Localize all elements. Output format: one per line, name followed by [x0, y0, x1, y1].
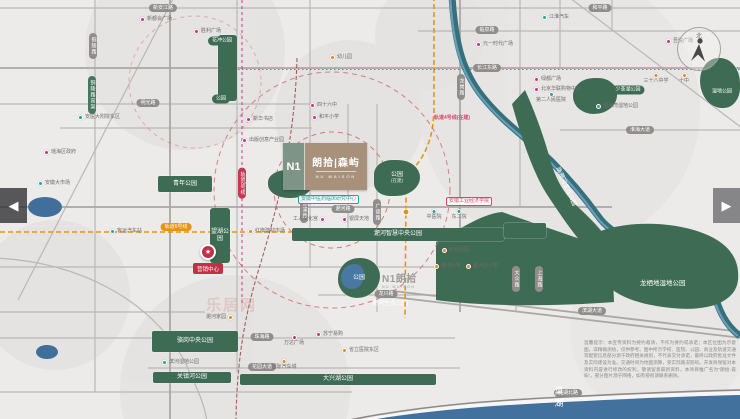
park-area: 骆岗中央公园 — [152, 331, 238, 352]
poi-label: 安徽中医药临床研究中心 — [298, 195, 359, 204]
road-name-pill: 明光路 — [136, 99, 159, 107]
park-area: 大兴湖公园 — [240, 374, 436, 385]
poi-marker: 中医院 — [426, 209, 441, 220]
park-label: 关镇河公园 — [177, 374, 207, 381]
park-area: 淝河智慧中央公园 — [292, 228, 504, 241]
poi-marker: 安徽中医药临床研究中心 — [298, 195, 359, 204]
poi-label: 胜利广场 — [201, 29, 221, 34]
road-name-pill: 珠海路 — [250, 333, 273, 341]
road-name-pill: 滨湖大道 — [578, 307, 606, 315]
poi-marker: 苏宁易购 — [316, 332, 343, 337]
poi-label: 淝河小学 — [441, 264, 461, 269]
north-label: 北 — [696, 31, 702, 40]
secondary-project-name: N1朗拾 — [382, 270, 442, 285]
poi-label: 银屏天地 — [349, 217, 369, 222]
poi-dot-icon — [342, 348, 347, 353]
poi-dot-icon — [476, 42, 481, 47]
poi-dot-icon — [466, 264, 471, 269]
poi-dot-icon — [110, 229, 115, 234]
poi-label: 安徽大市场 — [45, 181, 70, 186]
poi-marker: 出版创意产业园 — [242, 138, 284, 143]
prev-arrow-button[interactable]: ◀ — [0, 188, 27, 223]
poi-label: 三十八中学 — [643, 79, 668, 84]
poi-dot-icon — [248, 229, 253, 234]
poi-dot-icon — [78, 115, 83, 120]
poi-dot-icon — [162, 360, 167, 365]
poi-dot-icon — [330, 55, 335, 60]
road-name-pill: 和平路 — [588, 4, 611, 12]
park-label: 公园 — [353, 275, 365, 282]
poi-dot-icon — [666, 39, 671, 44]
park-name-pill: 湿地公园 — [708, 88, 736, 97]
park-name-pill: 少荃湖公园 — [611, 86, 644, 95]
poi-label: 淝河家园 — [206, 315, 226, 320]
metro-line-label: 轨道4号线(在建) — [430, 114, 474, 122]
road-name-pill: 上海路 — [535, 266, 543, 292]
poi-label: 北京华联购物中心 — [541, 87, 581, 92]
project-monogram: N1 — [283, 143, 305, 190]
poi-dot-icon — [194, 29, 199, 34]
poi-dot-icon — [542, 15, 547, 20]
poi-marker: 幼儿园 — [330, 55, 352, 60]
poi-marker: 北京华联购物中心 — [534, 87, 581, 92]
metro-line-label: 轨道6号线 — [161, 223, 192, 231]
metro-line-label: 轨道2号线 — [238, 168, 246, 199]
poi-label: 万达广场 — [284, 341, 304, 346]
poi-label: 出版创意产业园 — [249, 138, 284, 143]
poi-dot-icon — [534, 77, 539, 82]
lake-label: 巢湖 — [551, 386, 565, 410]
poi-label: 滨河湿地公园 — [169, 360, 199, 365]
poi-dot-icon — [310, 103, 315, 108]
poi-marker: 四十六中 — [310, 103, 337, 108]
poi-label: 中医院 — [426, 215, 441, 220]
poi-label: 国际汽车城 — [271, 365, 296, 370]
poi-marker: 淝河小学 — [434, 264, 461, 269]
park-label: 骆岗中央公园 — [177, 338, 213, 345]
road-name-pill: 龙川路 — [374, 290, 397, 298]
poi-marker: 和平小学 — [312, 115, 339, 120]
park-name-pill: 公园 — [212, 95, 230, 104]
poi-dot-icon — [242, 138, 247, 143]
road-name-pill: 长江东路 — [473, 64, 501, 72]
park-area: 公园(在建) — [374, 160, 420, 196]
park-name-pill: 花冲公园 — [208, 37, 236, 46]
poi-marker: 第二人民医院 — [536, 92, 566, 103]
poi-marker: 葛大店小学 — [466, 264, 498, 269]
poi-dot-icon — [246, 117, 251, 122]
poi-dot-icon — [442, 248, 447, 253]
poi-label: 客运汽车站 — [117, 229, 142, 234]
poi-label: 安医大附院东区 — [85, 115, 120, 120]
poi-marker: 客运汽车站 — [110, 229, 142, 234]
compass: 北 — [677, 27, 721, 71]
poi-marker: 淝河家园 — [206, 315, 233, 320]
map-canvas: 南淝河生态公园 龙栖地湿地公园 淝河生态公园 青年公 — [0, 0, 740, 419]
poi-marker: 胜利广场 — [194, 29, 221, 34]
poi-label: 瑶海湾湿地公园 — [603, 104, 638, 109]
poi-dot-icon — [44, 150, 49, 155]
poi-label: 工人文化宫 — [293, 217, 318, 222]
poi-label: 东二院 — [451, 215, 466, 220]
road-name-pill: 淮海大道 — [626, 126, 654, 134]
poi-label: 第二人民医院 — [536, 98, 566, 103]
poi-dot-icon — [228, 315, 233, 320]
secondary-project-label: N1朗拾 NU MAISON — [382, 270, 442, 289]
poi-marker: 江淮汽车 — [542, 15, 569, 20]
road-name-pill: 临泉路 — [475, 26, 498, 34]
poi-marker: 瑶海湾湿地公园 — [596, 104, 638, 109]
park-label: 淝河智慧中央公园 — [374, 231, 422, 238]
poi-marker: 滨河湿地公园 — [162, 360, 199, 365]
poi-label: 葛大店小学 — [473, 264, 498, 269]
poi-marker: 省立医院东区 — [342, 348, 379, 353]
poi-marker: 银屏天地 — [342, 217, 369, 222]
poi-dot-icon — [320, 217, 325, 222]
poi-label: 时代花园 — [449, 248, 469, 253]
chevron-right-icon: ▶ — [722, 198, 732, 214]
next-arrow-button[interactable]: ▶ — [713, 188, 740, 223]
poi-marker: 东二院 — [451, 209, 466, 220]
poi-label: 幼儿园 — [337, 55, 352, 60]
star-icon: ★ — [205, 248, 211, 256]
poi-label: 江淮汽车 — [549, 15, 569, 20]
poi-marker: 万达广场 — [284, 335, 304, 346]
poi-label: 元一时代广场 — [483, 42, 513, 47]
park-label: 公园 — [391, 172, 403, 179]
poi-label: 新都会广场 — [147, 17, 172, 22]
poi-marker: 工人文化宫 — [293, 217, 325, 222]
poi-label: 红旗建材市场 — [255, 229, 285, 234]
poi-label: 苏宁易购 — [323, 332, 343, 337]
poi-dot-icon — [342, 217, 347, 222]
poi-label: 新华书店 — [253, 117, 273, 122]
poi-dot-icon — [312, 115, 317, 120]
park-sublabel: (在建) — [391, 178, 403, 184]
poi-marker: 时代花园 — [442, 248, 469, 253]
disclaimer-text: 温馨提示：本宣传资料为要约邀请，不作为要约或承诺；本区位图为示意图，非精确测绘，… — [584, 340, 736, 390]
road-name-pill: 新安江路 — [149, 4, 177, 12]
road-name-pill: 淝河路 — [331, 205, 354, 213]
road-name-pill: 大众路 — [512, 266, 520, 292]
poi-label: 四十六中 — [317, 103, 337, 108]
chevron-left-icon: ◀ — [9, 198, 19, 214]
poi-marker: 新都会广场 — [140, 17, 172, 22]
sales-center-marker: ★ — [200, 244, 216, 260]
poi-marker: 国际汽车城 — [271, 359, 296, 370]
poi-dot-icon — [140, 17, 145, 22]
sales-center-label: 营销中心 — [193, 263, 223, 274]
poi-dot-icon — [316, 332, 321, 337]
poi-label: 十中 — [679, 79, 689, 84]
poi-label: 省立医院东区 — [349, 348, 379, 353]
road-name-pill: 龙岗路 — [457, 74, 465, 100]
park-area — [504, 223, 546, 238]
poi-label: 瑶海区政府 — [51, 150, 76, 155]
project-name-en: NU MAISON — [316, 171, 357, 179]
poi-marker: 三十八中学 — [643, 73, 668, 84]
road-name-pill: 铜陵路 — [89, 33, 97, 59]
poi-marker: 十中 — [679, 73, 689, 84]
poi-marker: 红旗建材市场 — [248, 229, 285, 234]
poi-dot-icon — [534, 87, 539, 92]
watermark: 乐居网 — [206, 294, 257, 315]
park-area: 关镇河公园 — [153, 372, 231, 383]
park-label: 青年公园 — [173, 181, 197, 188]
poi-marker: 元一时代广场 — [476, 42, 513, 47]
project-name: 朗拾|森屿 — [312, 154, 360, 169]
project-logo-card: N1 朗拾|森屿 NU MAISON — [283, 143, 367, 190]
poi-label: 绿都广场 — [541, 77, 561, 82]
poi-dot-icon — [434, 264, 439, 269]
poi-label: 安徽工业经济学院 — [446, 197, 492, 206]
park-label: 望湖公园 — [210, 229, 230, 243]
poi-dot-icon — [596, 104, 601, 109]
poi-dot-icon — [38, 181, 43, 186]
poi-marker: 新华书店 — [246, 117, 273, 122]
poi-marker: 安医大附院东区 — [78, 115, 120, 120]
poi-label: 和平小学 — [319, 115, 339, 120]
secondary-project-name-en: NU MAISON — [382, 285, 442, 289]
park-label: 大兴湖公园 — [323, 376, 353, 383]
road-name-pill: 广德路 — [373, 199, 381, 225]
road-name-pill: 铜陵路高架 — [88, 76, 96, 114]
poi-marker: 安徽工业经济学院 — [446, 197, 492, 206]
poi-marker: 绿都广场 — [534, 77, 561, 82]
poi-marker: 瑶海区政府 — [44, 150, 76, 155]
poi-marker: 安徽大市场 — [38, 181, 70, 186]
park-area: 青年公园 — [158, 176, 212, 192]
